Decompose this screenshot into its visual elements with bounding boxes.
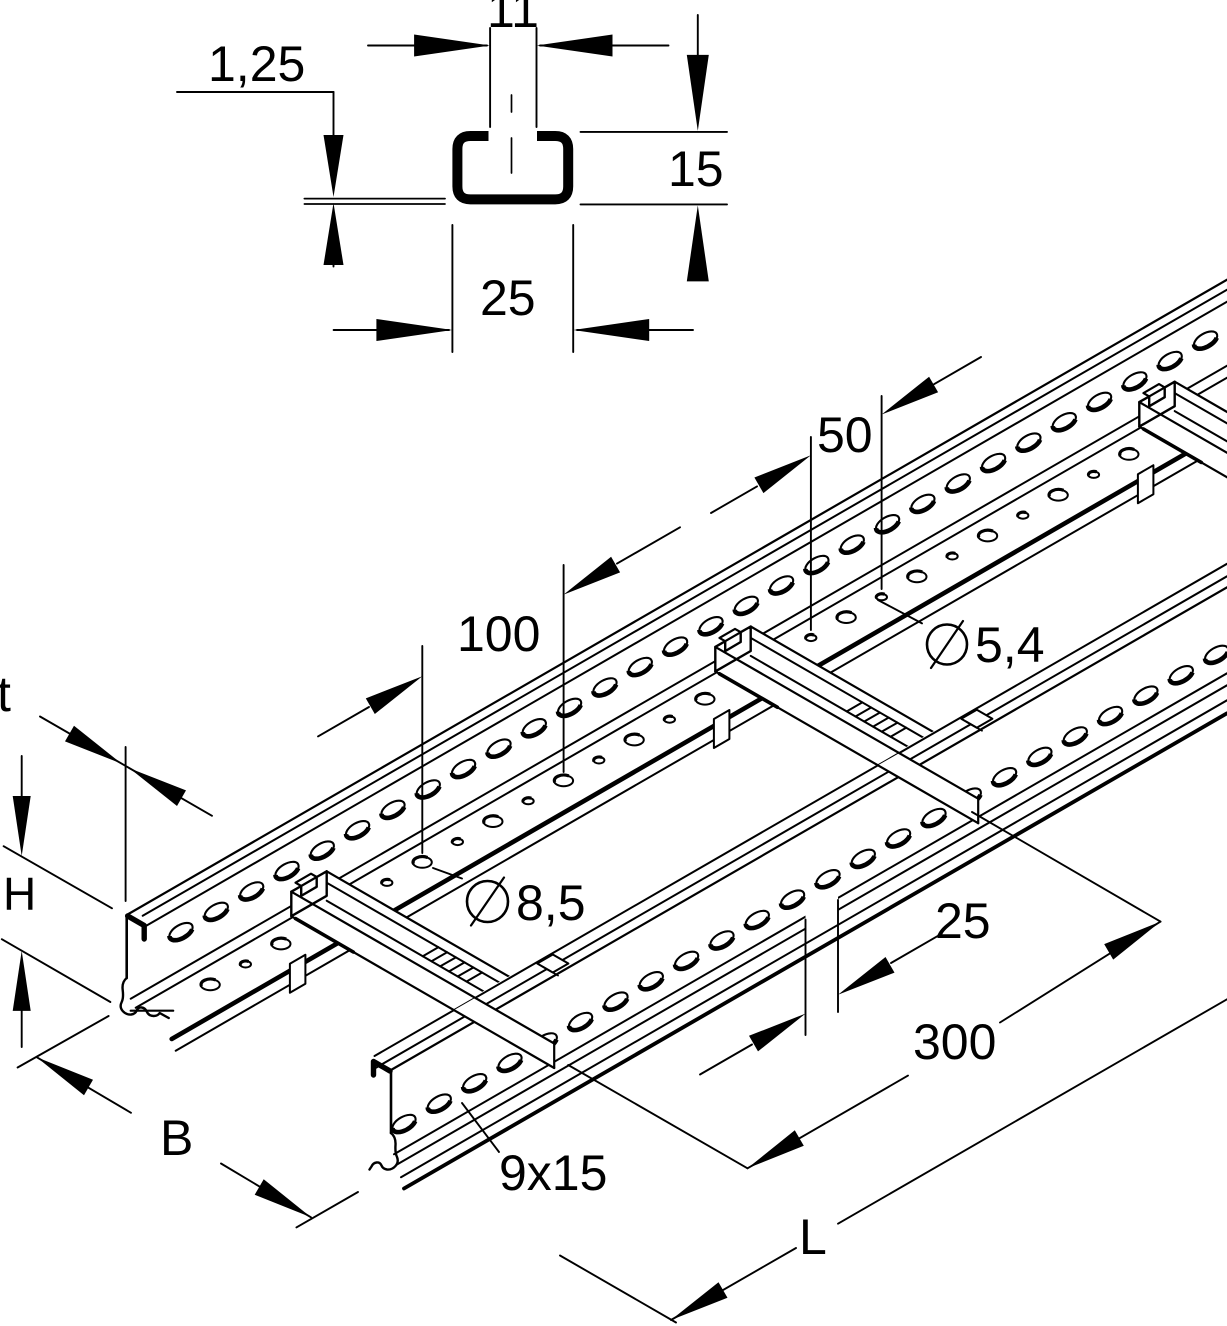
svg-text:1,25: 1,25 [208,36,305,92]
svg-text:25: 25 [935,893,991,949]
svg-text:300: 300 [913,1014,996,1070]
svg-text:H: H [3,868,36,920]
svg-text:B: B [160,1110,193,1166]
svg-text:8,5: 8,5 [516,875,586,931]
svg-text:100: 100 [457,606,540,662]
svg-text:9x15: 9x15 [499,1145,607,1201]
svg-text:50: 50 [817,407,873,463]
svg-text:11: 11 [487,0,539,38]
svg-text:25: 25 [480,270,536,326]
svg-text:5,4: 5,4 [975,617,1045,673]
svg-text:t: t [0,666,11,722]
svg-text:15: 15 [668,141,724,197]
svg-text:L: L [799,1209,827,1265]
